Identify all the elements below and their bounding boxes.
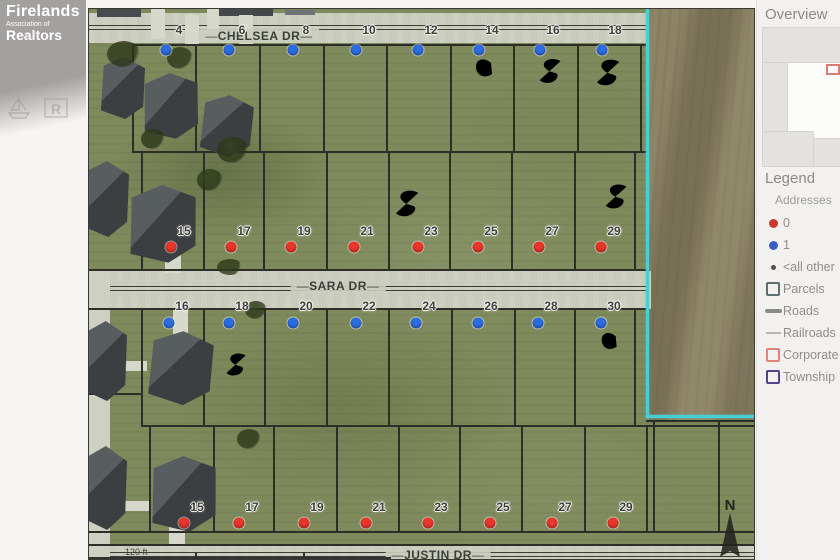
address-point-red[interactable] xyxy=(226,242,237,253)
legend-label: Railroads xyxy=(783,326,836,340)
legend-swatch-corporate xyxy=(766,348,780,362)
lot-number-label: 30 xyxy=(607,299,620,313)
lot-number-label: 21 xyxy=(360,224,373,238)
parcel-line xyxy=(634,151,636,269)
parcel-line xyxy=(141,425,755,427)
overview-minimap[interactable] xyxy=(763,28,840,166)
address-point-red[interactable] xyxy=(423,518,434,529)
legend-label: Parcels xyxy=(783,282,825,296)
parcel-line xyxy=(653,420,655,531)
lot-number-label: 15 xyxy=(177,224,190,238)
legend-item-addresses-all-other: <all other xyxy=(763,256,840,278)
lot-number-label: 10 xyxy=(362,23,375,37)
handwritten-mark-ic xyxy=(575,328,621,356)
handwritten-mark-s xyxy=(602,181,629,212)
lot-number-label: 29 xyxy=(607,224,620,238)
address-point-blue[interactable] xyxy=(288,318,299,329)
address-point-red[interactable] xyxy=(349,242,360,253)
street-label-sara: SARA DR xyxy=(291,279,386,293)
lot-number-label: 25 xyxy=(484,224,497,238)
parcel-line xyxy=(574,151,576,269)
lot-number-label: 19 xyxy=(297,224,310,238)
legend-swatch-railroads xyxy=(766,332,781,334)
scale-label: 120 ft xyxy=(125,547,148,557)
parcel-line xyxy=(449,151,451,269)
legend-label: 0 xyxy=(783,216,790,230)
parcel-line xyxy=(264,308,266,425)
parcel-line xyxy=(149,425,151,531)
lot-number-label: 18 xyxy=(235,299,248,313)
handwritten-mark-ic xyxy=(449,54,495,84)
map-sidebar: Overview Legend Addresses 01<all otherPa… xyxy=(756,0,840,560)
lot-number-label: 28 xyxy=(544,299,557,313)
legend-addresses-label: Addresses xyxy=(775,193,832,207)
legend-item-addresses-0: 0 xyxy=(763,212,840,234)
overview-title: Overview xyxy=(765,6,828,23)
scale-bar-tick xyxy=(303,553,305,560)
street-label-justin: JUSTIN DR xyxy=(386,548,491,560)
lot-number-label: 27 xyxy=(545,224,558,238)
parcel-line xyxy=(273,425,275,531)
parcel-line xyxy=(514,308,516,425)
handwritten-mark-s xyxy=(536,55,563,87)
legend-swatch-parcels xyxy=(766,282,780,296)
parcel-line xyxy=(574,308,576,425)
watermark-line3: Realtors xyxy=(6,28,80,43)
legend-swatch-roads xyxy=(765,309,782,313)
lot-number-label: 25 xyxy=(496,500,509,514)
screenshot-page: Firelands Association of Realtors R xyxy=(0,0,840,560)
corporate-boundary-line xyxy=(646,415,755,418)
legend-swatch-addresses-all-other xyxy=(771,265,776,270)
lot-number-label: 29 xyxy=(619,500,632,514)
parcel-line xyxy=(326,308,328,425)
parcel-line xyxy=(646,420,755,422)
lot-number-label: 6 xyxy=(239,23,246,37)
parcel-line xyxy=(388,151,390,269)
address-point-red[interactable] xyxy=(234,518,245,529)
address-point-red[interactable] xyxy=(473,242,484,253)
legend-label: Roads xyxy=(783,304,819,318)
parcel-line xyxy=(459,425,461,531)
lot-number-label: 21 xyxy=(372,500,385,514)
mls-watermark: Firelands Association of Realtors R xyxy=(6,4,80,121)
address-point-red[interactable] xyxy=(534,242,545,253)
address-point-blue[interactable] xyxy=(351,45,362,56)
legend-item-corporate: Corporate xyxy=(763,344,840,366)
lot-number-label: 8 xyxy=(303,23,310,37)
parcel-map-viewport[interactable]: CHELSEA DR SARA DR JUSTIN DR 46810121416… xyxy=(88,8,755,560)
realtor-logo-icon: R xyxy=(42,95,70,121)
svg-text:R: R xyxy=(51,101,61,117)
address-point-blue[interactable] xyxy=(224,45,235,56)
lot-number-label: 15 xyxy=(190,500,203,514)
parcel-line xyxy=(634,308,636,425)
scale-bar xyxy=(89,557,391,559)
address-point-blue[interactable] xyxy=(288,45,299,56)
parcel-line xyxy=(89,544,755,546)
legend-item-roads: Roads xyxy=(763,300,840,322)
north-arrow: N xyxy=(715,499,745,560)
parcel-line xyxy=(386,44,388,151)
lot-number-label: 12 xyxy=(424,23,437,37)
lot-number-label: 16 xyxy=(546,23,559,37)
handwritten-mark-s xyxy=(593,57,622,88)
corporate-boundary-line xyxy=(646,9,649,418)
address-point-red[interactable] xyxy=(179,518,190,529)
house xyxy=(88,446,127,530)
legend-item-township: Township xyxy=(763,366,840,388)
address-point-blue[interactable] xyxy=(533,318,544,329)
address-point-blue[interactable] xyxy=(596,318,607,329)
lot-number-label: 4 xyxy=(176,23,183,37)
address-point-blue[interactable] xyxy=(413,45,424,56)
parcel-line xyxy=(326,151,328,269)
address-point-blue[interactable] xyxy=(164,318,175,329)
legend-label: <all other xyxy=(783,260,835,274)
legend-swatch-addresses-1 xyxy=(769,241,778,250)
address-point-blue[interactable] xyxy=(535,45,546,56)
parcel-line xyxy=(336,425,338,531)
sailboat-logo-icon xyxy=(6,95,32,121)
handwritten-mark-s xyxy=(223,348,248,381)
legend-swatch-addresses-0 xyxy=(769,219,778,228)
lot-number-label: 23 xyxy=(424,224,437,238)
parcel-line xyxy=(132,44,646,46)
address-point-red[interactable] xyxy=(286,242,297,253)
parcel-line xyxy=(451,308,453,425)
lot-number-label: 17 xyxy=(237,224,250,238)
lot-number-label: 17 xyxy=(245,500,258,514)
lot-number-label: 24 xyxy=(422,299,435,313)
parcel-line xyxy=(513,44,515,151)
parcel-line xyxy=(398,425,400,531)
house xyxy=(88,161,129,237)
address-point-blue[interactable] xyxy=(597,45,608,56)
parcel-line xyxy=(646,425,648,531)
parcel-line xyxy=(521,425,523,531)
address-point-red[interactable] xyxy=(608,518,619,529)
parcel-line xyxy=(511,151,513,269)
lot-number-label: 23 xyxy=(434,500,447,514)
address-point-blue[interactable] xyxy=(224,318,235,329)
parcel-line xyxy=(141,308,143,425)
parcel-line xyxy=(263,151,265,269)
parcel-line xyxy=(132,151,646,153)
lot-number-label: 26 xyxy=(484,299,497,313)
address-point-red[interactable] xyxy=(299,518,310,529)
address-point-blue[interactable] xyxy=(473,318,484,329)
address-point-red[interactable] xyxy=(596,242,607,253)
minimap-view-extent[interactable] xyxy=(826,64,840,75)
legend-title: Legend xyxy=(765,170,815,187)
north-arrow-label: N xyxy=(715,499,745,513)
house xyxy=(88,321,127,401)
address-point-red[interactable] xyxy=(413,242,424,253)
address-point-red[interactable] xyxy=(547,518,558,529)
legend-label: 1 xyxy=(783,238,790,252)
lot-number-label: 22 xyxy=(362,299,375,313)
parcel-line xyxy=(323,44,325,151)
parcel-line xyxy=(577,44,579,151)
north-arrow-icon xyxy=(715,513,745,557)
legend-item-parcels: Parcels xyxy=(763,278,840,300)
legend-label: Corporate xyxy=(783,348,839,362)
street-label-chelsea: CHELSEA DR xyxy=(199,29,319,43)
parcel-line xyxy=(584,425,586,531)
parcel-line xyxy=(640,44,642,151)
address-point-blue[interactable] xyxy=(161,45,172,56)
parcel-line xyxy=(388,308,390,425)
watermark-line1: Firelands xyxy=(6,4,80,21)
legend-label: Township xyxy=(783,370,835,384)
watermark-logos: R xyxy=(6,95,80,121)
lot-number-label: 18 xyxy=(608,23,621,37)
address-point-blue[interactable] xyxy=(411,318,422,329)
parcel-line xyxy=(259,44,261,151)
lot-number-label: 16 xyxy=(175,299,188,313)
lot-number-label: 20 xyxy=(299,299,312,313)
parcel-line xyxy=(89,269,646,271)
farm-field xyxy=(649,9,755,421)
handwritten-mark-s xyxy=(392,187,421,220)
legend-swatch-township xyxy=(766,370,780,384)
address-point-red[interactable] xyxy=(166,242,177,253)
lot-number-label: 19 xyxy=(310,500,323,514)
legend-item-addresses-1: 1 xyxy=(763,234,840,256)
address-point-red[interactable] xyxy=(361,518,372,529)
address-point-blue[interactable] xyxy=(351,318,362,329)
scale-bar-tick xyxy=(195,553,197,560)
address-point-red[interactable] xyxy=(485,518,496,529)
legend-item-railroads: Railroads xyxy=(763,322,840,344)
lot-number-label: 27 xyxy=(558,500,571,514)
lot-number-label: 14 xyxy=(485,23,498,37)
